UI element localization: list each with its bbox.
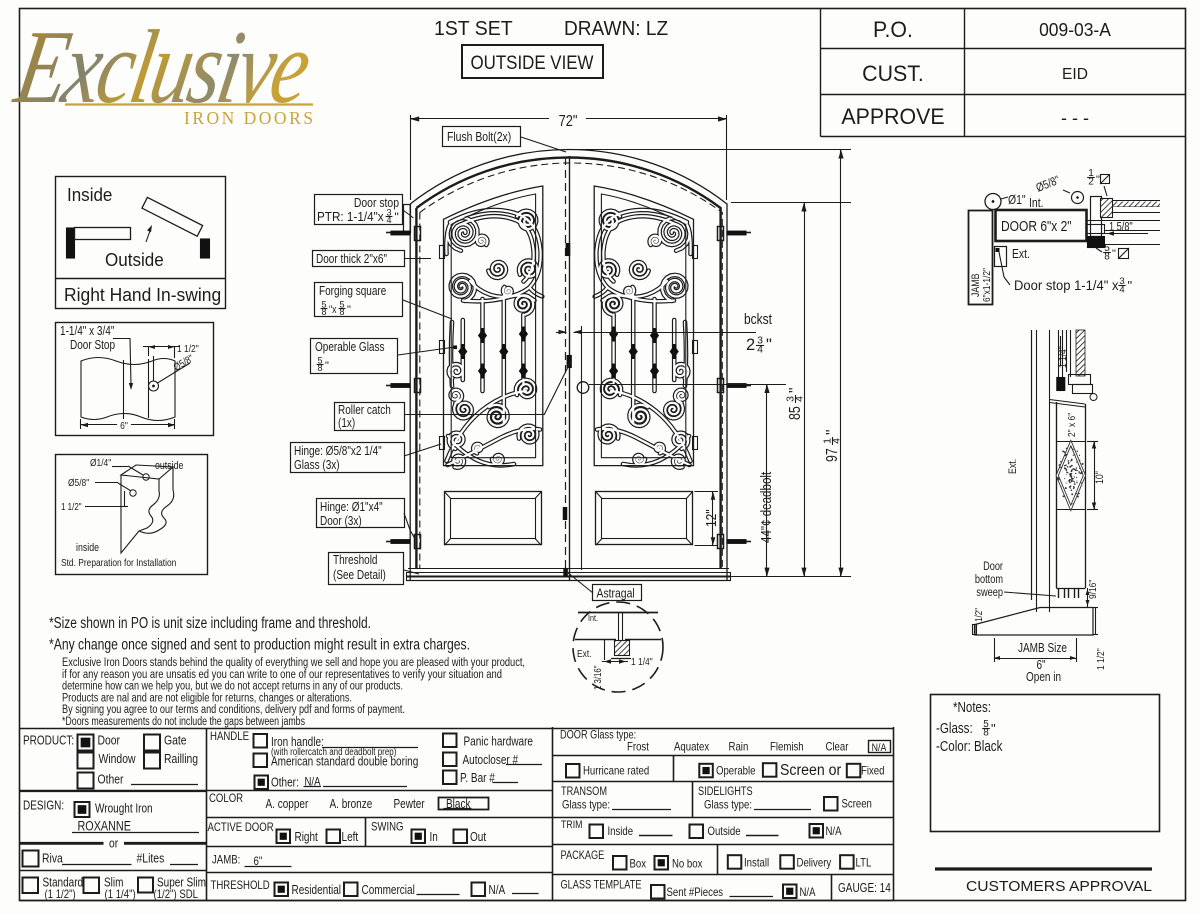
svg-text:TRIM: TRIM [561,819,583,831]
svg-text:Door stop 1-1/4" x: Door stop 1-1/4" x [1014,277,1119,293]
svg-text:Right: Right [295,830,319,844]
svg-text:No box: No box [672,857,702,871]
svg-text:Roller catch: Roller catch [338,403,391,417]
svg-text:1-1/4" x 3/4": 1-1/4" x 3/4" [60,324,114,338]
svg-text:N/A: N/A [800,885,816,899]
svg-text:8: 8 [1104,252,1110,263]
svg-text:COLOR: COLOR [209,791,243,805]
svg-text:9/16": 9/16" [1087,579,1099,599]
svg-text:P.O.: P.O. [873,17,913,42]
svg-text:Screen or: Screen or [780,762,841,779]
svg-text:-Color: Black: -Color: Black [936,739,1003,755]
svg-text:Door thick 2"x6": Door thick 2"x6" [316,252,387,266]
svg-text:ROXANNE: ROXANNE [78,819,131,834]
svg-text:Riva: Riva [42,851,63,866]
svg-text:Inside: Inside [67,184,112,205]
svg-text:Outside: Outside [708,824,741,838]
svg-text:": " [787,387,804,393]
svg-text:bckst: bckst [744,311,773,328]
svg-text:10": 10" [1094,471,1106,484]
svg-text:N/A: N/A [489,883,506,897]
svg-text:APPROVE: APPROVE [841,104,944,129]
svg-text:Threshold: Threshold [333,553,378,567]
svg-text:Delivery: Delivery [797,856,832,870]
svg-text:Gate: Gate [164,733,187,748]
svg-text:Ø1/4": Ø1/4" [90,457,111,469]
svg-text:Std. Preparation for Installat: Std. Preparation for Installation [61,557,176,569]
svg-text:A. bronze: A. bronze [330,797,373,811]
svg-text:Exclusive Iron Doors stands be: Exclusive Iron Doors stands behind the q… [62,657,525,669]
svg-text:Int.: Int. [588,613,598,623]
svg-text:009-03-A: 009-03-A [1039,20,1111,40]
svg-text:1 3/16": 1 3/16" [593,665,604,690]
svg-text:8: 8 [983,728,989,739]
svg-text:2: 2 [746,336,755,354]
svg-text:4: 4 [831,438,843,444]
svg-text:Residential: Residential [292,883,342,897]
svg-text:1 1/2": 1 1/2" [61,502,82,513]
svg-text:Ext.: Ext. [1012,246,1030,261]
svg-text:(1/2") SDL: (1/2") SDL [154,887,199,901]
svg-text:Flemish: Flemish [770,740,804,754]
svg-text:TRANSOM: TRANSOM [561,786,607,798]
svg-text:": " [824,429,841,435]
svg-text:4: 4 [386,215,391,225]
svg-text:(1 1/4"): (1 1/4") [105,887,136,901]
svg-text:1ST SET: 1ST SET [434,17,513,40]
svg-text:12": 12" [703,509,720,527]
svg-text:N/A: N/A [826,824,842,838]
svg-text:Ø5/8": Ø5/8" [68,477,89,489]
svg-text:(See Detail): (See Detail) [333,568,386,582]
svg-text:8: 8 [339,307,344,317]
svg-text:inside: inside [76,542,99,554]
svg-text:SWING: SWING [371,820,404,834]
svg-text:Ext.: Ext. [577,648,592,660]
svg-text:PRODUCT:: PRODUCT: [23,734,74,748]
svg-text:SIDELIGHTS: SIDELIGHTS [698,786,753,798]
svg-text:CUST.: CUST. [862,61,924,86]
svg-text:Forging square: Forging square [319,284,386,298]
svg-text:#Lites: #Lites [137,851,165,866]
svg-text:6"x1-1/2": 6"x1-1/2" [981,268,993,302]
svg-text:": " [1096,174,1100,186]
svg-text:DRAWN: LZ: DRAWN: LZ [564,17,668,40]
svg-text:In: In [430,830,438,844]
svg-text:": " [325,360,329,372]
svg-text:Clear: Clear [826,740,849,754]
svg-text:Door Stop: Door Stop [70,338,115,352]
svg-text:Left: Left [342,830,359,844]
svg-text:GAUGE: 14: GAUGE: 14 [838,881,891,895]
svg-text:": " [991,721,996,736]
svg-text:IRON DOORS: IRON DOORS [184,108,315,128]
svg-text:1 1/4": 1 1/4" [1057,346,1069,368]
svg-text:By signing you agree to our te: By signing you agree to our terms and co… [62,704,405,716]
svg-text:Operable: Operable [716,764,756,778]
svg-text:PACKAGE: PACKAGE [561,850,605,862]
svg-text:Door stop: Door stop [354,195,399,210]
svg-text:JAMB Size: JAMB Size [1018,641,1067,655]
svg-text:Pewter: Pewter [394,797,425,811]
svg-text:Frost: Frost [627,740,649,754]
svg-text:Operable Glass: Operable Glass [315,340,385,354]
svg-text:*Notes:: *Notes: [953,700,991,716]
svg-text:determine how can we help you,: determine how can we help you, but we do… [62,681,403,693]
svg-text:ACTIVE DOOR: ACTIVE DOOR [208,820,274,834]
svg-text:": " [766,336,772,354]
svg-text:bottom: bottom [975,574,1003,586]
svg-text:Screen: Screen [842,797,872,811]
svg-text:Int.: Int. [1029,195,1044,210]
svg-text:"x: "x [329,304,337,316]
svg-text:Flush Bolt(2x): Flush Bolt(2x) [447,129,511,144]
svg-text:OUTSIDE VIEW: OUTSIDE VIEW [471,52,595,74]
svg-text:(1x): (1x) [338,416,355,430]
svg-text:DOOR Glass type:: DOOR Glass type: [560,730,636,742]
svg-text:Commercial: Commercial [362,883,415,897]
svg-text:Door: Door [983,561,1003,573]
svg-text:Panic hardware: Panic hardware [464,735,534,749]
svg-text:97: 97 [824,448,841,462]
svg-text:if for any reason you are unsa: if for any reason you are unsatis ed you… [62,669,502,681]
svg-text:": " [1112,248,1116,260]
svg-text:44"¢ deadbolt: 44"¢ deadbolt [759,472,775,543]
svg-text:*Size shown in PO is unit size: *Size shown in PO is unit size including… [49,615,371,632]
svg-text:Rain: Rain [729,740,749,754]
svg-text:or: or [109,836,119,851]
svg-text:*Any change once signed and se: *Any change once signed and sent to prod… [49,637,470,654]
svg-text:Door: Door [98,733,121,748]
svg-text:Fixed: Fixed [861,764,885,778]
svg-text:1 1/2": 1 1/2" [1095,648,1107,670]
svg-text:Glass type:: Glass type: [562,798,610,812]
svg-text:Outside: Outside [105,249,164,270]
svg-text:*Doors measurements do not inc: *Doors measurements do not include the g… [62,716,305,728]
svg-text:Glass (3x): Glass (3x) [294,458,340,472]
svg-text:GLASS TEMPLATE: GLASS TEMPLATE [561,880,642,892]
svg-text:-Glass:: -Glass: [936,721,973,737]
svg-text:2" x 6": 2" x 6" [1066,413,1078,437]
svg-text:DOOR 6"x 2": DOOR 6"x 2" [1001,218,1072,235]
svg-text:1/2": 1/2" [974,608,985,622]
svg-text:Inside: Inside [608,824,634,838]
svg-text:Hurricane rated: Hurricane rated [583,764,649,778]
svg-text:1 5/8": 1 5/8" [1109,222,1133,234]
svg-text:Ø1": Ø1" [1008,192,1026,207]
svg-text:2: 2 [1088,177,1094,188]
svg-text:85: 85 [787,406,804,420]
svg-text:Aquatex: Aquatex [674,740,709,754]
svg-text:American standard double borin: American standard double boring [271,755,418,769]
svg-text:Window: Window [99,751,136,766]
svg-text:": " [347,304,351,316]
svg-text:Box: Box [630,857,647,871]
svg-text:Open in: Open in [1026,670,1061,684]
svg-text:8: 8 [317,363,322,373]
svg-text:Right Hand In-swing: Right Hand In-swing [64,285,221,305]
svg-text:- - -: - - - [1061,108,1089,128]
svg-text:Door (3x): Door (3x) [320,514,362,528]
svg-text:4: 4 [757,344,763,356]
svg-text:Other: Other [98,772,125,787]
svg-text:CUSTOMERS APPROVAL: CUSTOMERS APPROVAL [966,879,1152,895]
svg-text:LTL: LTL [856,856,872,870]
svg-text:Other:: Other: [271,776,299,790]
svg-text:EID: EID [1062,66,1088,83]
svg-text:Out: Out [470,830,487,844]
svg-text:": " [1128,278,1133,293]
svg-text:1 1/4": 1 1/4" [631,656,653,668]
svg-text:PTR: 1-1/4"x: PTR: 1-1/4"x [317,209,384,224]
svg-text:Ext.: Ext. [1007,459,1019,474]
svg-text:Astragal: Astragal [597,586,635,601]
svg-text:": " [395,210,399,224]
svg-text:Hinge: Ø1"x4": Hinge: Ø1"x4" [320,500,383,514]
svg-text:sweep: sweep [976,587,1003,599]
svg-text:Products are nal and are no: Products are nal and are not eligible fo… [62,692,352,704]
svg-text:(1 1/2"): (1 1/2") [45,887,76,901]
svg-text:Railling: Railling [164,751,198,766]
svg-text:Install: Install [744,856,769,870]
svg-text:6": 6" [120,420,128,432]
svg-text:Glass type:: Glass type: [704,798,752,812]
svg-text:A. copper: A. copper [266,797,309,811]
svg-text:THRESHOLD: THRESHOLD [211,878,270,892]
svg-text:P. Bar #: P. Bar # [460,771,495,785]
svg-text:4: 4 [1119,284,1124,295]
svg-text:HANDLE: HANDLE [210,729,249,743]
svg-text:JAMB:: JAMB: [212,853,240,867]
svg-text:8: 8 [321,307,326,317]
svg-text:4: 4 [794,396,806,402]
svg-text:72": 72" [559,113,578,130]
svg-text:Sent #Pieces: Sent #Pieces [667,885,724,899]
svg-text:Hinge: Ø5/8"x2 1/4": Hinge: Ø5/8"x2 1/4" [294,444,382,458]
svg-text:Wrought Iron: Wrought Iron [95,802,153,816]
svg-text:DESIGN:: DESIGN: [23,799,64,813]
